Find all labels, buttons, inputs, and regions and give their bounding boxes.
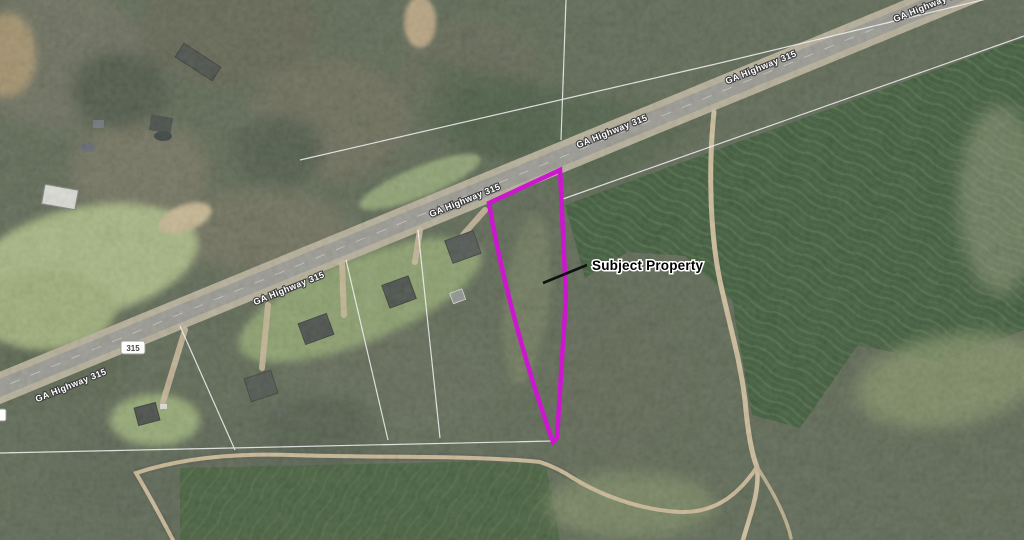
route-shield-number: 315 [126,344,140,353]
map-canvas: Subject Property GA Highway 315 GA Highw… [0,0,1024,540]
route-shield-partial [0,409,6,421]
satellite-map: Subject Property GA Highway 315 GA Highw… [0,0,1024,540]
texture-overlay-fine [0,0,1024,540]
subject-property-label: Subject Property [592,258,704,273]
